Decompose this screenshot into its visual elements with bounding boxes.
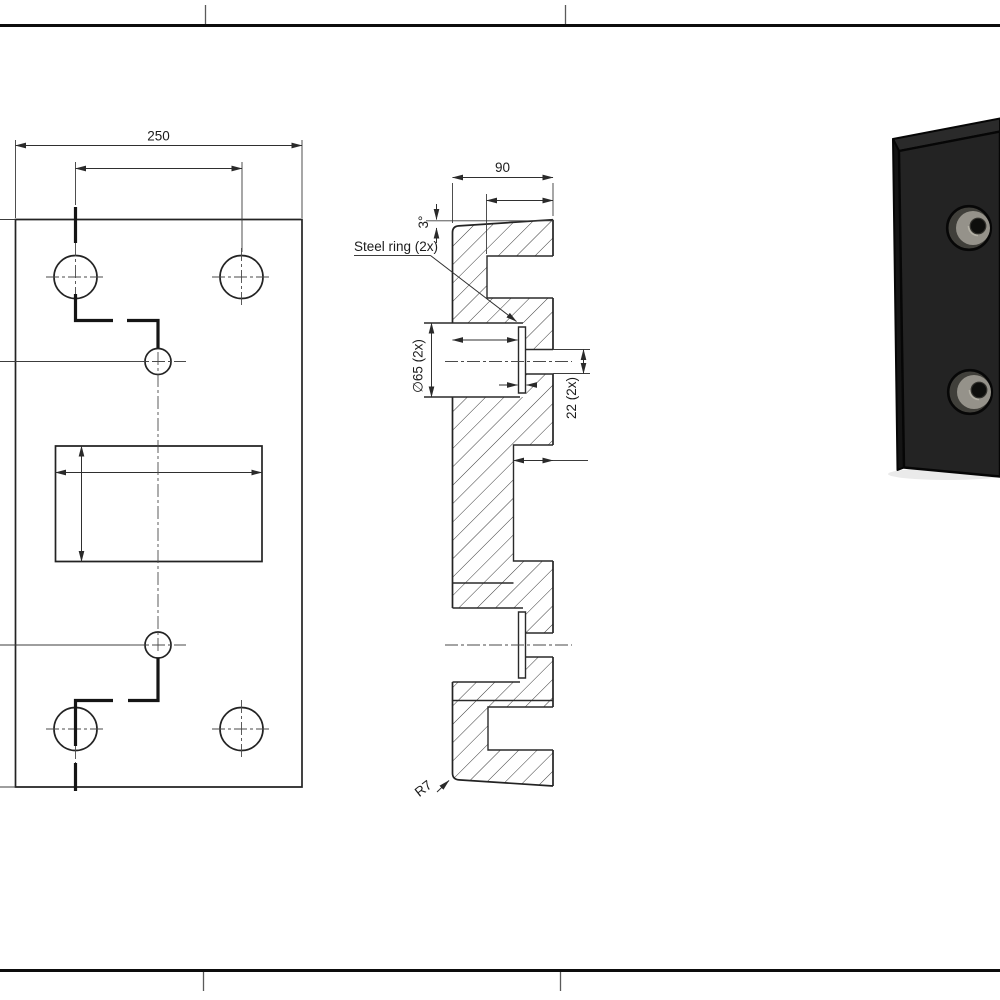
render-hole-lower bbox=[948, 370, 992, 414]
drawing-sheet: 250 bbox=[0, 0, 1000, 1000]
pin-hole-3d bbox=[970, 218, 986, 234]
radius-leader bbox=[437, 781, 449, 793]
render-3d bbox=[888, 119, 1000, 481]
front-view: 250 bbox=[0, 129, 302, 792]
pin-hole-label: 22 (2x) bbox=[564, 377, 579, 419]
dim-90-extensions bbox=[453, 183, 554, 223]
cad-drawing: 250 bbox=[0, 0, 1000, 1000]
pin-hole-3d bbox=[971, 382, 987, 398]
dim-250-label: 250 bbox=[147, 129, 170, 144]
dim-inner-extensions bbox=[76, 162, 243, 252]
dim-90-label: 90 bbox=[495, 160, 510, 175]
edge-extension-left bbox=[0, 220, 16, 788]
bore-diameter-label: ∅65 (2x) bbox=[411, 339, 426, 393]
dim-250-extensions bbox=[16, 140, 303, 218]
pocket-outline bbox=[56, 446, 263, 562]
render-hole-upper bbox=[947, 206, 991, 250]
pin-hole-extension-lines bbox=[0, 362, 144, 646]
steel-ring-label: Steel ring (2x) bbox=[354, 239, 438, 254]
frame-top-center-marks bbox=[206, 5, 566, 24]
block-front-face bbox=[899, 132, 1000, 477]
frame-bottom-center-marks bbox=[204, 972, 561, 991]
corner-radius-label: R7 bbox=[412, 777, 435, 799]
draft-angle-label: 3° bbox=[416, 216, 431, 229]
section-view: 90 3° Steel ring (2x) ∅65 (2x) 22 (2x) R… bbox=[354, 160, 590, 800]
